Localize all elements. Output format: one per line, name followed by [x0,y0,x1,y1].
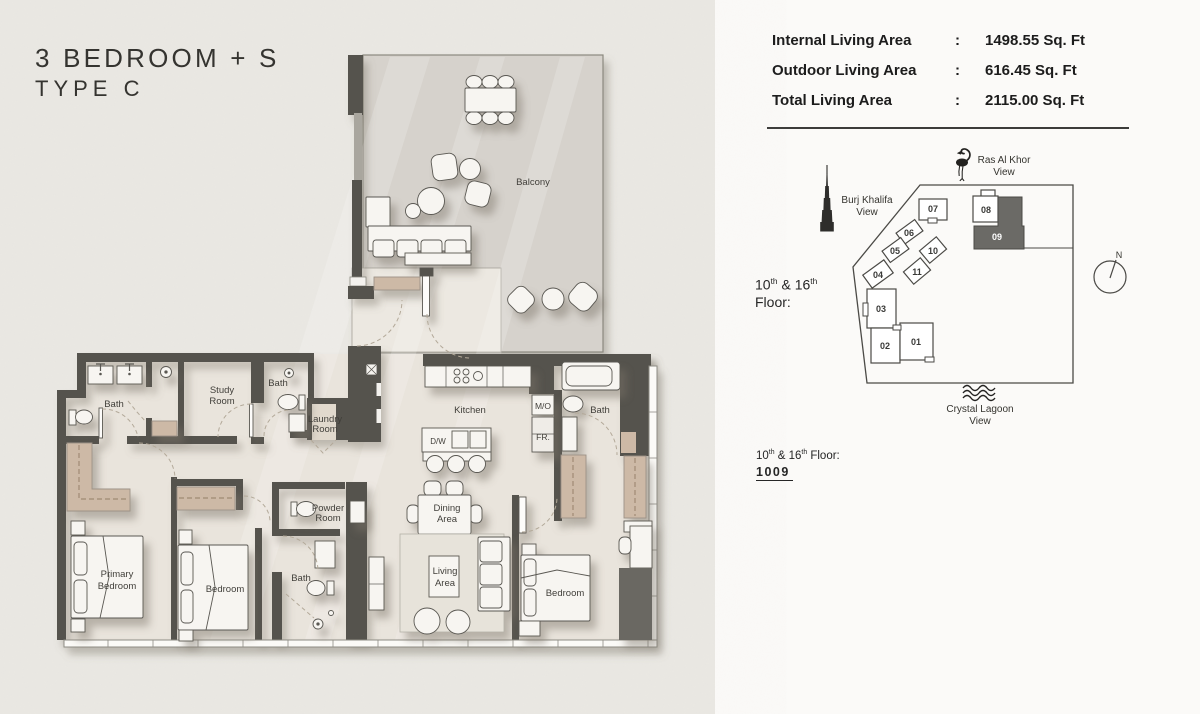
svg-text:01: 01 [911,337,921,347]
svg-text:Bedroom: Bedroom [98,581,137,592]
svg-text:Bath: Bath [268,378,288,389]
svg-text:D/W: D/W [430,437,446,446]
svg-text:Room: Room [312,424,337,435]
svg-text:10: 10 [928,246,938,256]
svg-text:Ras Al Khor: Ras Al Khor [978,155,1031,166]
svg-text:FR.: FR. [536,432,550,442]
svg-text:N: N [1116,250,1123,260]
svg-text:View: View [969,416,991,427]
svg-text:03: 03 [876,304,886,314]
svg-text:M/O: M/O [535,401,551,411]
svg-text:Dining: Dining [434,503,461,514]
svg-text:Study: Study [210,385,235,396]
svg-text:View: View [856,207,878,218]
svg-text:Bath: Bath [291,573,311,584]
svg-text:Bedroom: Bedroom [206,584,245,595]
svg-text:05: 05 [890,246,900,256]
svg-text:Burj Khalifa: Burj Khalifa [841,195,893,206]
svg-text:Kitchen: Kitchen [454,405,486,416]
svg-text:02: 02 [880,341,890,351]
svg-text:Area: Area [435,578,456,589]
svg-text:06: 06 [904,228,914,238]
svg-text:Crystal Lagoon: Crystal Lagoon [946,404,1013,415]
svg-text:Room: Room [315,513,340,524]
svg-text:08: 08 [981,205,991,215]
svg-text:Room: Room [209,396,234,407]
svg-text:04: 04 [873,270,883,280]
svg-text:09: 09 [992,232,1002,242]
svg-text:Balcony: Balcony [516,177,550,188]
svg-text:11: 11 [912,267,922,277]
svg-text:Area: Area [437,514,458,525]
svg-text:Primary: Primary [101,569,134,580]
svg-text:07: 07 [928,204,938,214]
svg-text:View: View [993,167,1015,178]
svg-text:Bedroom: Bedroom [546,588,585,599]
svg-text:Living: Living [433,566,458,577]
svg-text:Bath: Bath [104,399,124,410]
svg-text:Bath: Bath [590,405,610,416]
